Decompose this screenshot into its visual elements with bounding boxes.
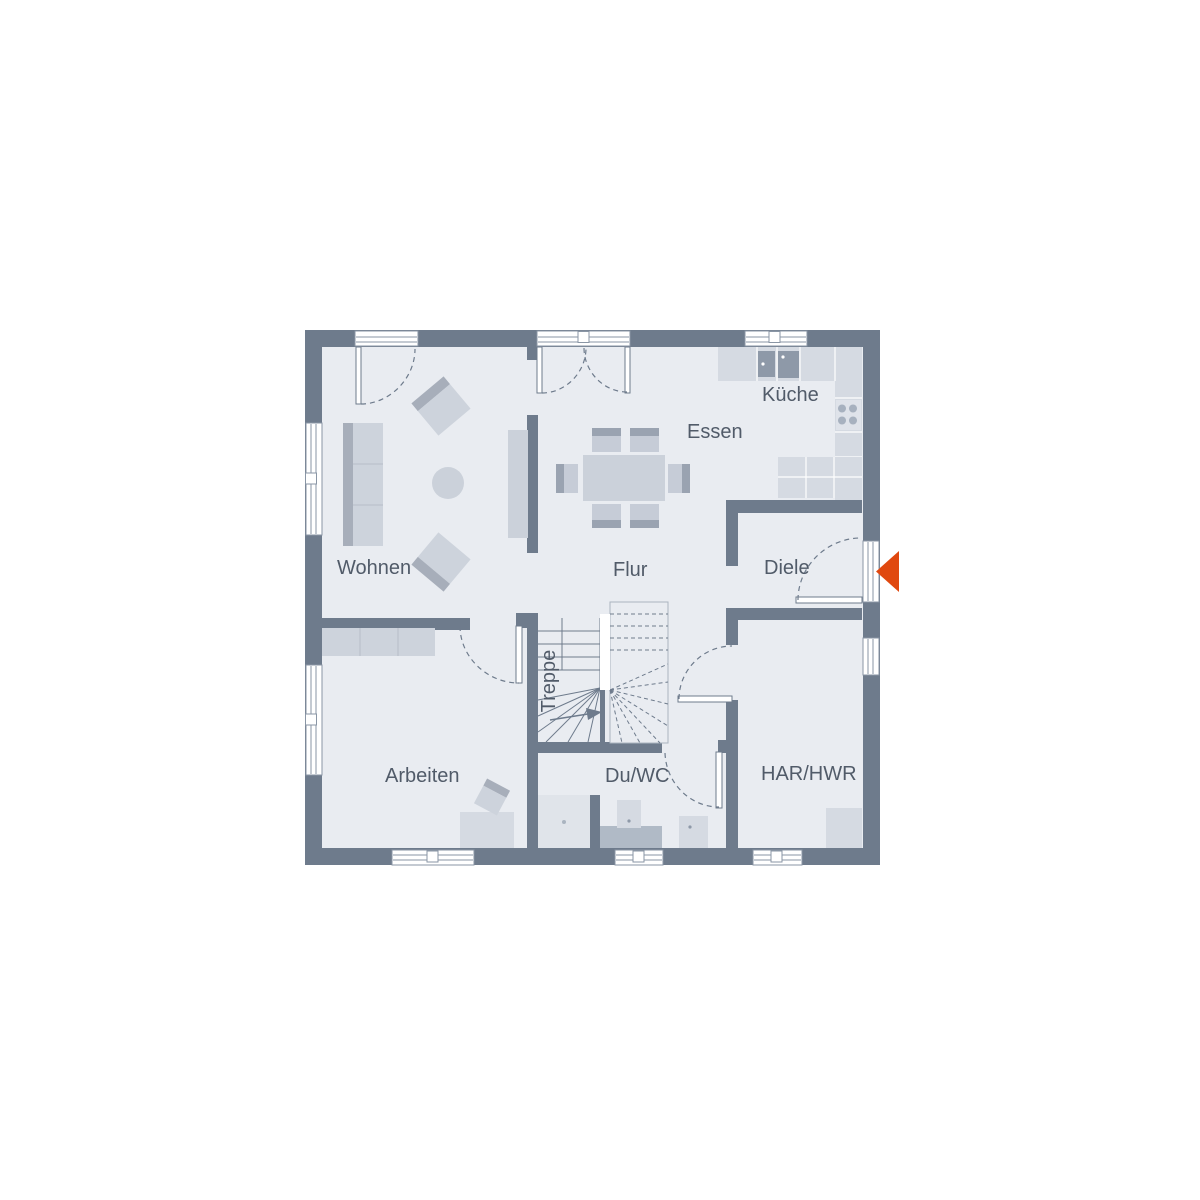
window-arbeiten-bottom: [392, 850, 474, 865]
room-label-diele: Diele: [764, 558, 810, 578]
window-terrace-wohnen: [355, 331, 418, 346]
wall-duwc-har: [726, 700, 738, 848]
wall-stair-left: [527, 613, 538, 848]
kitchen-oven: [778, 351, 799, 378]
door-leaf-french-right: [625, 347, 630, 393]
tv-lowboard: [508, 430, 528, 538]
room-label-essen: Essen: [687, 422, 743, 442]
washing-machine: [826, 808, 862, 848]
floor-plan-page: Wohnen Essen Küche Flur Diele Treppe Arb…: [0, 0, 1200, 1200]
window-wohnen-left: [306, 423, 323, 535]
room-label-treppe: Treppe: [539, 646, 559, 716]
door-leaf-har: [678, 696, 732, 702]
sofa: [343, 423, 383, 546]
door-leaf-french-left: [537, 347, 542, 393]
door-leaf-duwc: [716, 752, 722, 808]
wall-stub-flur-diele: [726, 513, 738, 566]
coffee-table: [432, 467, 464, 499]
window-duwc-bottom: [615, 850, 663, 865]
door-leaf-arbeiten: [516, 626, 522, 683]
fixtures-har: [826, 808, 862, 848]
window-har-right: [863, 638, 879, 675]
window-kueche: [745, 331, 807, 346]
window-arbeiten-left: [306, 665, 323, 775]
stair-upper-flight: [610, 602, 668, 743]
shower-drain: [562, 820, 566, 824]
office-shelf: [322, 628, 435, 656]
window-double-door-essen: [537, 331, 630, 346]
stair-well-gap: [600, 614, 610, 690]
vanity-counter: [600, 826, 662, 848]
wall-stub-wohnen-essen: [527, 347, 538, 360]
room-label-kueche: Küche: [762, 385, 819, 405]
room-label-arbeiten: Arbeiten: [385, 766, 460, 786]
stair-spine-wall: [600, 690, 605, 752]
desk: [460, 812, 514, 848]
room-label-wohnen: Wohnen: [337, 558, 411, 578]
door-leaf-terrace: [356, 347, 361, 404]
window-har-bottom: [753, 850, 802, 865]
wall-kueche-diele: [726, 500, 862, 513]
room-label-harhwr: HAR/HWR: [761, 764, 857, 784]
cooktop: [836, 400, 861, 430]
toilet: [679, 816, 708, 848]
dining-table: [583, 455, 665, 501]
wall-diele-bottom: [726, 608, 862, 620]
room-label-flur: Flur: [613, 560, 647, 580]
washbasin: [617, 800, 641, 828]
tv-wall: [527, 415, 538, 553]
kitchen-sink: [758, 351, 775, 377]
door-leaf-entrance: [796, 597, 862, 603]
room-label-duwc: Du/WC: [605, 766, 669, 786]
shower-partition-wall: [590, 795, 600, 848]
floor-plan-drawing: [0, 0, 1200, 1200]
